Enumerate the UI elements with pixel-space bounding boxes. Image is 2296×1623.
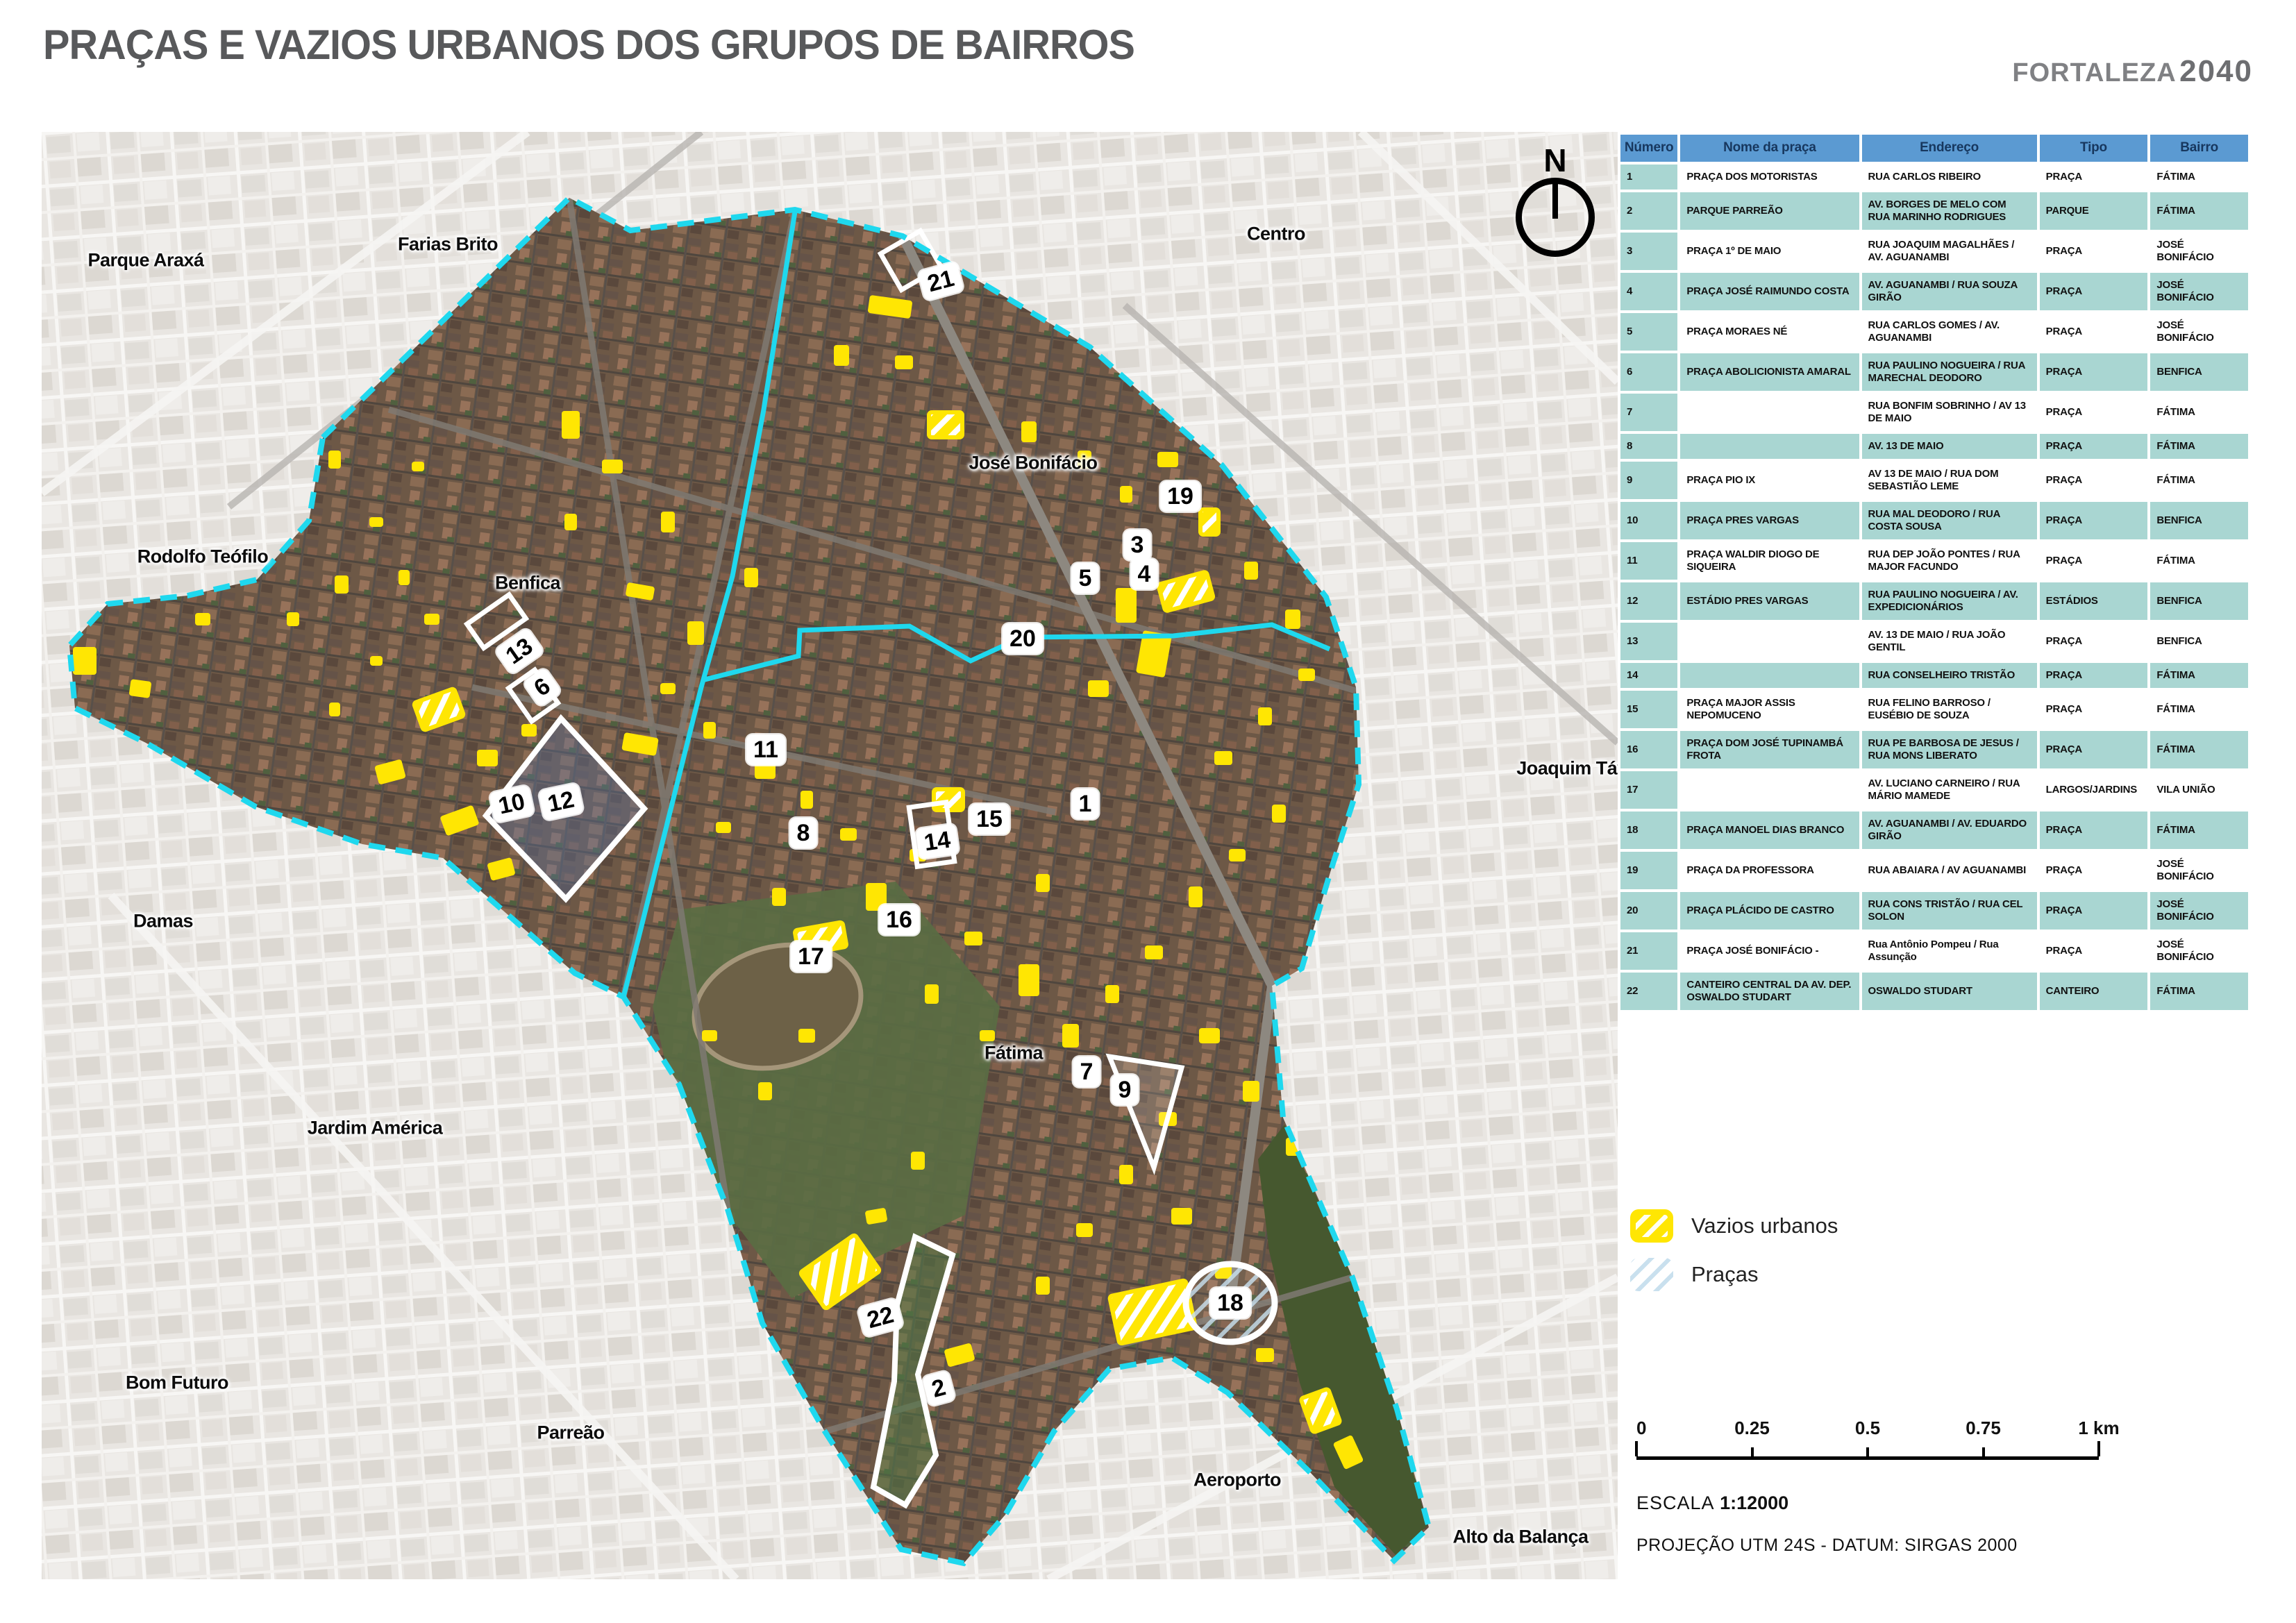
district-label: Centro (1247, 224, 1305, 245)
pracas-swatch-icon (1630, 1258, 1673, 1291)
cell-bairro: JOSÉ BONIFÁCIO (2150, 273, 2248, 310)
cell-tipo: PRAÇA (2040, 932, 2148, 970)
legend-label: Praças (1691, 1262, 1758, 1287)
table-row: 13AV. 13 DE MAIO / RUA JOÃO GENTILPRAÇAB… (1620, 623, 2248, 660)
pracas-table: NúmeroNome da praçaEndereçoTipoBairro1PR… (1618, 132, 2251, 1013)
cell-nome: PRAÇA PRES VARGAS (1680, 502, 1859, 539)
scale-bar-graphic (1636, 1441, 2099, 1460)
cell-nome: PRAÇA MANOEL DIAS BRANCO (1680, 811, 1859, 849)
praca-marker-15: 15 (969, 804, 1009, 834)
table-row: 9PRAÇA PIO IXAV 13 DE MAIO / RUA DOM SEB… (1620, 462, 2248, 499)
cell-tipo: PRAÇA (2040, 273, 2148, 310)
table-row: 18PRAÇA MANOEL DIAS BRANCOAV. AGUANAMBI … (1620, 811, 2248, 849)
cell-endereco: RUA JOAQUIM MAGALHÃES / AV. AGUANAMBI (1862, 233, 2037, 270)
praca-marker-8: 8 (790, 818, 817, 848)
district-label: Parreão (537, 1422, 604, 1444)
district-label: Jardim América (308, 1118, 443, 1139)
brand-year: 2040 (2179, 54, 2253, 88)
cell-bairro: FÁTIMA (2150, 462, 2248, 499)
district-label: Rodolfo Teófilo (137, 546, 268, 568)
praca-marker-18: 18 (1210, 1288, 1250, 1318)
praca-marker-9: 9 (1112, 1075, 1139, 1105)
cell-num: 7 (1620, 394, 1677, 431)
cell-tipo: CANTEIRO (2040, 973, 2148, 1010)
cell-num: 2 (1620, 192, 1677, 230)
table-row: 1PRAÇA DOS MOTORISTASRUA CARLOS RIBEIROP… (1620, 165, 2248, 190)
vazios-urbanos-swatch-icon (1630, 1209, 1673, 1243)
legend-item-vazios: Vazios urbanos (1630, 1209, 1838, 1243)
table-header-row: NúmeroNome da praçaEndereçoTipoBairro (1620, 135, 2248, 162)
fortaleza-2040-logo: FORTALEZA 2040 (2012, 54, 2253, 89)
cell-endereco: RUA CONSELHEIRO TRISTÃO (1862, 663, 2037, 688)
cell-bairro: JOSÉ BONIFÁCIO (2150, 852, 2248, 889)
cell-nome (1680, 771, 1859, 809)
cell-tipo: PRAÇA (2040, 313, 2148, 351)
column-header: Nome da praça (1680, 135, 1859, 162)
cell-tipo: PRAÇA (2040, 892, 2148, 930)
cell-endereco: RUA BONFIM SOBRINHO / AV 13 DE MAIO (1862, 394, 2037, 431)
cell-tipo: PRAÇA (2040, 434, 2148, 459)
cell-num: 1 (1620, 165, 1677, 190)
table-row: 7RUA BONFIM SOBRINHO / AV 13 DE MAIOPRAÇ… (1620, 394, 2248, 431)
praca-marker-17: 17 (791, 941, 831, 972)
table-row: 19PRAÇA DA PROFESSORARUA ABAIARA / AV AG… (1620, 852, 2248, 889)
cell-endereco: RUA FELINO BARROSO / EUSÉBIO DE SOUZA (1862, 691, 2037, 728)
table-row: 16PRAÇA DOM JOSÉ TUPINAMBÁ FROTARUA PE B… (1620, 731, 2248, 768)
scale-tick-label: 0.75 (1966, 1418, 2001, 1439)
cell-num: 3 (1620, 233, 1677, 270)
cell-endereco: RUA PE BARBOSA DE JESUS / RUA MONS LIBER… (1862, 731, 2037, 768)
praca-marker-7: 7 (1073, 1057, 1100, 1087)
cell-nome: PRAÇA ABOLICIONISTA AMARAL (1680, 353, 1859, 391)
map-legend: Vazios urbanos Praças (1630, 1209, 1838, 1306)
cell-bairro: FÁTIMA (2150, 663, 2248, 688)
cell-endereco: RUA PAULINO NOGUEIRA / AV. EXPEDICIONÁRI… (1862, 582, 2037, 620)
cell-nome (1680, 623, 1859, 660)
cell-endereco: AV. LUCIANO CARNEIRO / RUA MÁRIO MAMEDE (1862, 771, 2037, 809)
praca-marker-3: 3 (1124, 530, 1151, 560)
cell-num: 16 (1620, 731, 1677, 768)
cell-endereco: AV. 13 DE MAIO (1862, 434, 2037, 459)
table-row: 17AV. LUCIANO CARNEIRO / RUA MÁRIO MAMED… (1620, 771, 2248, 809)
cell-bairro: VILA UNIÃO (2150, 771, 2248, 809)
scale-bar-labels: 00.250.50.751 km (1636, 1418, 2099, 1441)
praca-marker-20: 20 (1003, 623, 1043, 654)
cell-bairro: FÁTIMA (2150, 811, 2248, 849)
table-row: 3PRAÇA 1º DE MAIORUA JOAQUIM MAGALHÃES /… (1620, 233, 2248, 270)
praca-marker-11: 11 (746, 734, 785, 765)
cell-num: 20 (1620, 892, 1677, 930)
cell-bairro: FÁTIMA (2150, 542, 2248, 580)
cell-bairro: FÁTIMA (2150, 691, 2248, 728)
district-label: Fátima (984, 1043, 1043, 1064)
cell-num: 19 (1620, 852, 1677, 889)
cell-num: 8 (1620, 434, 1677, 459)
cell-nome: PRAÇA MORAES NÉ (1680, 313, 1859, 351)
cell-bairro: FÁTIMA (2150, 192, 2248, 230)
cell-num: 13 (1620, 623, 1677, 660)
district-label: Damas (133, 911, 193, 932)
cell-tipo: PRAÇA (2040, 731, 2148, 768)
cell-bairro: FÁTIMA (2150, 731, 2248, 768)
cell-nome: PARQUE PARREÃO (1680, 192, 1859, 230)
cell-nome: PRAÇA 1º DE MAIO (1680, 233, 1859, 270)
scale-bar: 00.250.50.751 km (1636, 1418, 2099, 1460)
cell-num: 4 (1620, 273, 1677, 310)
cell-nome: PRAÇA PLÁCIDO DE CASTRO (1680, 892, 1859, 930)
district-label: Parque Araxá (87, 250, 203, 271)
cell-tipo: PRAÇA (2040, 394, 2148, 431)
cell-tipo: PRAÇA (2040, 663, 2148, 688)
column-header: Endereço (1862, 135, 2037, 162)
praca-marker-5: 5 (1072, 563, 1099, 594)
column-header: Número (1620, 135, 1677, 162)
cell-endereco: RUA PAULINO NOGUEIRA / RUA MARECHAL DEOD… (1862, 353, 2037, 391)
cell-bairro: FÁTIMA (2150, 165, 2248, 190)
cell-num: 10 (1620, 502, 1677, 539)
cell-bairro: JOSÉ BONIFÁCIO (2150, 932, 2248, 970)
district-label: Benfica (495, 573, 560, 594)
cell-nome: PRAÇA JOSÉ BONIFÁCIO - (1680, 932, 1859, 970)
scale-tick-label: 0.25 (1734, 1418, 1770, 1439)
cell-nome: ESTÁDIO PRES VARGAS (1680, 582, 1859, 620)
cell-endereco: AV. 13 DE MAIO / RUA JOÃO GENTIL (1862, 623, 2037, 660)
cell-endereco: RUA DEP JOÃO PONTES / RUA MAJOR FACUNDO (1862, 542, 2037, 580)
cell-num: 9 (1620, 462, 1677, 499)
cell-tipo: PRAÇA (2040, 165, 2148, 190)
cell-tipo: PRAÇA (2040, 233, 2148, 270)
cell-tipo: LARGOS/JARDINS (2040, 771, 2148, 809)
scale-tick-label: 0 (1636, 1418, 1646, 1439)
cell-nome: PRAÇA PIO IX (1680, 462, 1859, 499)
column-header: Tipo (2040, 135, 2148, 162)
cell-nome (1680, 663, 1859, 688)
cell-nome (1680, 394, 1859, 431)
cell-nome: PRAÇA DOM JOSÉ TUPINAMBÁ FROTA (1680, 731, 1859, 768)
cell-num: 22 (1620, 973, 1677, 1010)
cell-nome: PRAÇA DOS MOTORISTAS (1680, 165, 1859, 190)
table-row: 15PRAÇA MAJOR ASSIS NEPOMUCENORUA FELINO… (1620, 691, 2248, 728)
legend-label: Vazios urbanos (1691, 1213, 1838, 1238)
cell-num: 11 (1620, 542, 1677, 580)
column-header: Bairro (2150, 135, 2248, 162)
cell-bairro: BENFICA (2150, 502, 2248, 539)
table-row: 4PRAÇA JOSÉ RAIMUNDO COSTAAV. AGUANAMBI … (1620, 273, 2248, 310)
district-label: Bom Futuro (126, 1372, 228, 1394)
map-graphic (42, 132, 1618, 1579)
table-row: 22CANTEIRO CENTRAL DA AV. DEP. OSWALDO S… (1620, 973, 2248, 1010)
brand-city: FORTALEZA (2012, 58, 2176, 87)
cell-bairro: JOSÉ BONIFÁCIO (2150, 233, 2248, 270)
cell-num: 12 (1620, 582, 1677, 620)
cell-num: 14 (1620, 663, 1677, 688)
table-row: 14RUA CONSELHEIRO TRISTÃOPRAÇAFÁTIMA (1620, 663, 2248, 688)
cell-tipo: PRAÇA (2040, 811, 2148, 849)
district-label: Farias Brito (398, 234, 498, 255)
cell-num: 18 (1620, 811, 1677, 849)
cell-endereco: AV 13 DE MAIO / RUA DOM SEBASTIÃO LEME (1862, 462, 2037, 499)
cell-nome: CANTEIRO CENTRAL DA AV. DEP. OSWALDO STU… (1680, 973, 1859, 1010)
cell-endereco: Rua Antônio Pompeu / Rua Assunção (1862, 932, 2037, 970)
escala-label: ESCALA (1636, 1492, 1715, 1513)
table-row: 10PRAÇA PRES VARGASRUA MAL DEODORO / RUA… (1620, 502, 2248, 539)
table-row: 20PRAÇA PLÁCIDO DE CASTRORUA CONS TRISTÃ… (1620, 892, 2248, 930)
cell-tipo: PRAÇA (2040, 462, 2148, 499)
cell-nome: PRAÇA JOSÉ RAIMUNDO COSTA (1680, 273, 1859, 310)
cell-nome: PRAÇA DA PROFESSORA (1680, 852, 1859, 889)
cell-bairro: BENFICA (2150, 623, 2248, 660)
praca-marker-1: 1 (1072, 789, 1099, 819)
cell-tipo: PRAÇA (2040, 502, 2148, 539)
scale-tick-label: 0.5 (1855, 1418, 1880, 1439)
cell-num: 15 (1620, 691, 1677, 728)
page-title: PRAÇAS E VAZIOS URBANOS DOS GRUPOS DE BA… (43, 21, 1134, 69)
table-row: 5PRAÇA MORAES NÉRUA CARLOS GOMES / AV. A… (1620, 313, 2248, 351)
cell-bairro: FÁTIMA (2150, 434, 2248, 459)
escala-value: 1:12000 (1720, 1492, 1788, 1513)
cell-bairro: JOSÉ BONIFÁCIO (2150, 892, 2248, 930)
cell-num: 21 (1620, 932, 1677, 970)
cell-endereco: AV. BORGES DE MELO COM RUA MARINHO RODRI… (1862, 192, 2037, 230)
praca-marker-14: 14 (915, 823, 959, 859)
cell-tipo: PRAÇA (2040, 852, 2148, 889)
legend-item-pracas: Praças (1630, 1258, 1838, 1291)
compass-ring-icon (1516, 178, 1595, 257)
cell-tipo: ESTÁDIOS (2040, 582, 2148, 620)
table-row: 12ESTÁDIO PRES VARGASRUA PAULINO NOGUEIR… (1620, 582, 2248, 620)
compass-north-label: N (1500, 144, 1611, 176)
praca-marker-16: 16 (879, 905, 919, 935)
cell-bairro: JOSÉ BONIFÁCIO (2150, 313, 2248, 351)
cell-tipo: PRAÇA (2040, 353, 2148, 391)
cell-bairro: BENFICA (2150, 353, 2248, 391)
cell-endereco: AV. AGUANAMBI / AV. EDUARDO GIRÃO (1862, 811, 2037, 849)
poster-canvas: PRAÇAS E VAZIOS URBANOS DOS GRUPOS DE BA… (0, 0, 2296, 1623)
compass-rose: N (1500, 144, 1611, 257)
cell-endereco: RUA MAL DEODORO / RUA COSTA SOUSA (1862, 502, 2037, 539)
cell-num: 6 (1620, 353, 1677, 391)
cell-endereco: AV. AGUANAMBI / RUA SOUZA GIRÃO (1862, 273, 2037, 310)
cell-endereco: RUA CARLOS RIBEIRO (1862, 165, 2037, 190)
cell-nome: PRAÇA WALDIR DIOGO DE SIQUEIRA (1680, 542, 1859, 580)
scale-tick-label: 1 km (2078, 1418, 2119, 1439)
cell-bairro: FÁTIMA (2150, 973, 2248, 1010)
praca-marker-4: 4 (1131, 559, 1158, 589)
district-label: Alto da Balança (1452, 1527, 1588, 1548)
cell-endereco: RUA ABAIARA / AV AGUANAMBI (1862, 852, 2037, 889)
scale-text: ESCALA 1:12000 (1636, 1492, 1788, 1514)
praca-marker-19: 19 (1160, 481, 1200, 512)
table-row: 6PRAÇA ABOLICIONISTA AMARALRUA PAULINO N… (1620, 353, 2248, 391)
table-row: 21PRAÇA JOSÉ BONIFÁCIO -Rua Antônio Pomp… (1620, 932, 2248, 970)
cell-tipo: PRAÇA (2040, 623, 2148, 660)
cell-endereco: OSWALDO STUDART (1862, 973, 2037, 1010)
cell-bairro: BENFICA (2150, 582, 2248, 620)
satellite-map: N Parque AraxáFarias BritoCentroRodolfo … (42, 132, 1618, 1579)
cell-endereco: RUA CONS TRISTÃO / RUA CEL SOLON (1862, 892, 2037, 930)
cell-num: 17 (1620, 771, 1677, 809)
cell-tipo: PRAÇA (2040, 691, 2148, 728)
cell-num: 5 (1620, 313, 1677, 351)
cell-nome: PRAÇA MAJOR ASSIS NEPOMUCENO (1680, 691, 1859, 728)
table-row: 2PARQUE PARREÃOAV. BORGES DE MELO COM RU… (1620, 192, 2248, 230)
compass-needle-icon (1552, 183, 1558, 219)
table-row: 8AV. 13 DE MAIOPRAÇAFÁTIMA (1620, 434, 2248, 459)
cell-tipo: PRAÇA (2040, 542, 2148, 580)
district-label: Joaquim Távo (1516, 758, 1618, 780)
projection-text: PROJEÇÃO UTM 24S - DATUM: SIRGAS 2000 (1636, 1536, 2018, 1556)
cell-bairro: FÁTIMA (2150, 394, 2248, 431)
cell-nome (1680, 434, 1859, 459)
district-label: Aeroporto (1193, 1470, 1281, 1491)
table-row: 11PRAÇA WALDIR DIOGO DE SIQUEIRARUA DEP … (1620, 542, 2248, 580)
cell-endereco: RUA CARLOS GOMES / AV. AGUANAMBI (1862, 313, 2037, 351)
district-label: José Bonifácio (969, 453, 1097, 474)
cell-tipo: PARQUE (2040, 192, 2148, 230)
